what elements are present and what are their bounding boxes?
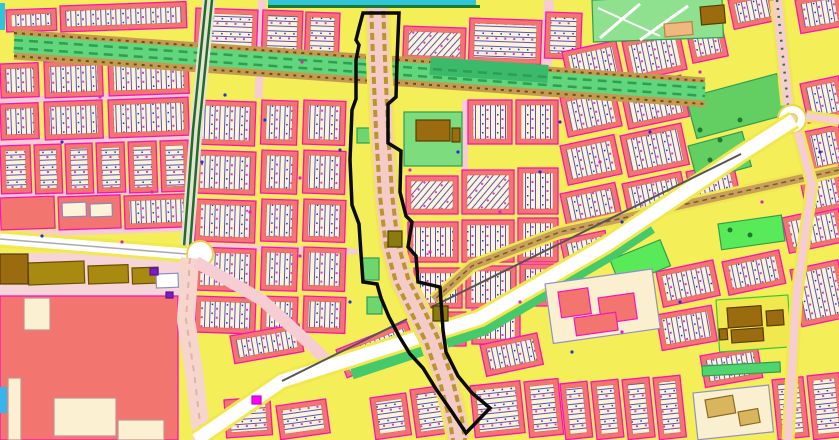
building (24, 298, 50, 330)
city-block (518, 168, 558, 214)
city-block (622, 377, 655, 439)
city-block (194, 150, 255, 195)
map-dot (40, 234, 43, 237)
tree-dot (728, 228, 733, 233)
city-block (302, 247, 345, 291)
map-dot (223, 93, 226, 96)
building (156, 273, 178, 288)
city-block (108, 97, 189, 138)
block-parcels (475, 386, 519, 432)
tree-dot (708, 158, 713, 163)
map-viewport[interactable] (0, 0, 839, 440)
map-dot (298, 176, 301, 179)
block-outline (0, 196, 55, 230)
block-parcels (266, 204, 293, 237)
map-dot (98, 95, 101, 98)
park-area (367, 297, 382, 314)
block-parcels (408, 31, 461, 57)
city-block (124, 194, 189, 229)
building (558, 288, 591, 318)
block-parcels (266, 155, 293, 189)
block-parcels (308, 105, 341, 140)
block-parcels (70, 148, 88, 189)
map-dot (348, 300, 351, 303)
city-block (468, 18, 541, 64)
map-dot (248, 210, 251, 213)
map-dot (498, 210, 501, 213)
city-block (468, 100, 512, 144)
city-block (195, 199, 256, 243)
city-block (470, 381, 525, 438)
city-block (260, 100, 298, 145)
road (430, 66, 548, 74)
city-block (261, 199, 298, 242)
map-dot (150, 190, 153, 193)
water-area (0, 3, 5, 30)
block-parcels (101, 147, 120, 188)
building (90, 203, 112, 217)
map-dot (558, 120, 561, 123)
building (700, 5, 725, 25)
block-parcels (200, 204, 251, 238)
block-parcels (165, 145, 184, 187)
building (727, 306, 762, 328)
map-dot (428, 250, 431, 253)
map-dot (620, 220, 623, 223)
block-parcels (310, 17, 335, 52)
map-dot (678, 300, 681, 303)
block-parcels (5, 108, 34, 135)
city-block (260, 247, 297, 291)
city-block (302, 150, 345, 194)
map-dot (263, 118, 266, 121)
city-block (34, 144, 63, 194)
block-parcels (308, 155, 341, 189)
city-block (524, 378, 564, 437)
map-dot (698, 70, 701, 73)
block-parcels (200, 105, 251, 141)
city-block (128, 141, 158, 193)
map-dot (408, 168, 411, 171)
city-block (0, 196, 55, 230)
block-parcels (550, 17, 577, 54)
block-parcels (49, 65, 98, 93)
map-dot (760, 200, 763, 203)
map-dot (818, 150, 821, 153)
map-dot (338, 148, 341, 151)
block-parcels (49, 105, 98, 135)
map-dot (648, 130, 651, 133)
map-canvas (0, 0, 839, 440)
block-parcels (200, 301, 251, 329)
block-parcels (467, 175, 509, 209)
block-parcels (411, 181, 453, 209)
map-dot (200, 160, 203, 163)
city-block (65, 143, 94, 194)
city-block (60, 2, 187, 32)
block-parcels (133, 146, 152, 188)
building (731, 328, 764, 343)
city-block (195, 296, 256, 334)
city-block (44, 60, 103, 98)
block-parcels (129, 199, 184, 224)
building (8, 378, 21, 440)
building (28, 261, 85, 285)
city-block (406, 176, 458, 214)
city-block (276, 399, 330, 440)
block-parcels (267, 15, 298, 50)
block-parcels (266, 252, 293, 286)
city-block (516, 100, 558, 144)
city-block (96, 142, 126, 193)
block-parcels (5, 150, 26, 189)
block-parcels (521, 105, 553, 139)
block-parcels (474, 23, 537, 59)
water-area (268, 5, 480, 8)
building (766, 310, 784, 326)
building (252, 396, 261, 404)
city-block (6, 8, 57, 32)
block-parcels (308, 252, 341, 286)
building (0, 254, 28, 284)
park-area (362, 258, 379, 280)
city-block (0, 63, 39, 98)
map-dot (570, 350, 573, 353)
tree-dot (748, 233, 753, 238)
block-parcels (529, 384, 558, 432)
building (88, 265, 129, 284)
block-parcels (5, 68, 34, 93)
tree-dot (698, 128, 703, 133)
building (118, 420, 164, 440)
city-block (370, 393, 411, 440)
building (388, 231, 402, 247)
block-parcels (11, 13, 51, 26)
city-block (44, 100, 103, 140)
building (54, 398, 116, 436)
city-block (260, 150, 297, 194)
city-block (653, 375, 686, 439)
block-parcels (200, 155, 251, 190)
map-dot (456, 150, 459, 153)
map-dot (518, 300, 521, 303)
map-dot (120, 240, 123, 243)
city-block (302, 100, 346, 145)
city-block (303, 296, 346, 333)
road (806, 116, 839, 121)
map-dot (598, 160, 601, 163)
map-dot (60, 140, 63, 143)
city-block (303, 199, 346, 242)
city-block (795, 0, 839, 33)
block-parcels (413, 227, 453, 257)
block-parcels (473, 105, 507, 139)
block-parcels (39, 149, 57, 189)
map-dot (300, 60, 303, 63)
building (416, 120, 450, 141)
building (738, 409, 760, 426)
tree-dot (738, 118, 743, 123)
map-dot (538, 170, 541, 173)
building (664, 22, 693, 37)
city-block (560, 381, 593, 440)
block-parcels (523, 173, 553, 209)
water-area (0, 387, 7, 413)
block-parcels (266, 105, 293, 140)
city-block (403, 26, 466, 62)
block-parcels (308, 204, 341, 237)
block-parcels (376, 399, 406, 434)
building (62, 202, 86, 217)
city-block (462, 170, 514, 214)
city-block (0, 103, 39, 140)
city-block (591, 379, 624, 440)
block-parcels (308, 301, 341, 328)
building (719, 328, 728, 340)
city-block (0, 145, 32, 194)
tree-dot (718, 138, 723, 143)
city-block (160, 140, 190, 192)
building (150, 268, 158, 275)
building (166, 292, 173, 298)
map-dot (298, 254, 301, 257)
building (452, 128, 460, 142)
block-parcels (113, 102, 184, 132)
map-dot (620, 330, 623, 333)
